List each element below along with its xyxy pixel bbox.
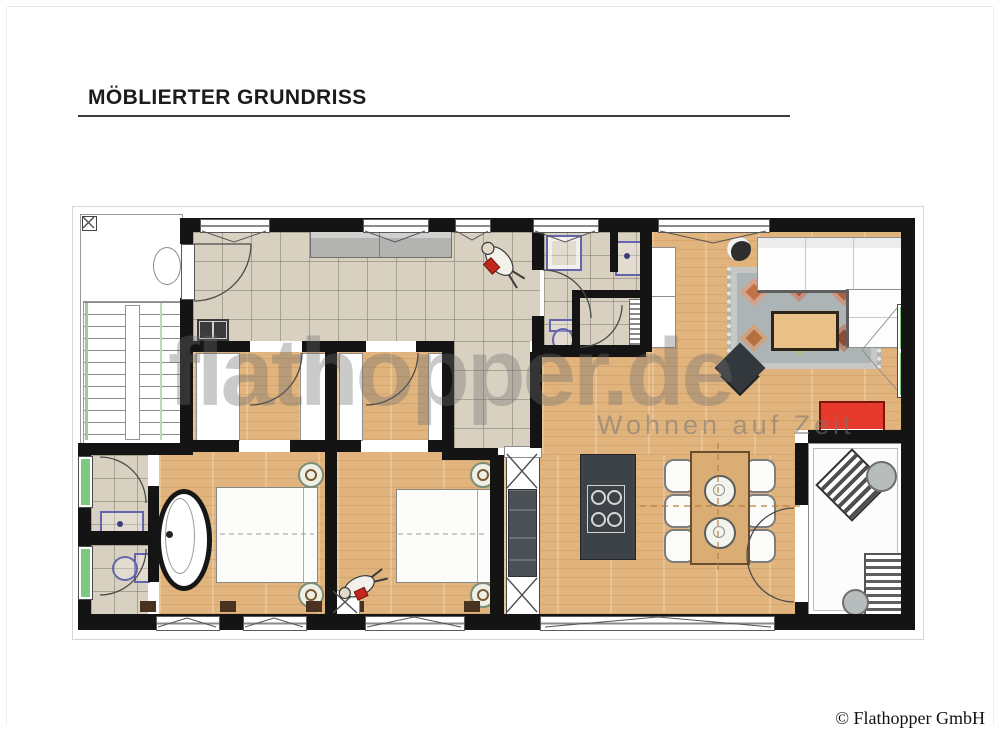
window-opening-mark bbox=[535, 231, 595, 242]
door-arc-storage bbox=[580, 305, 622, 347]
person-bedroom-icon bbox=[336, 566, 391, 606]
window-swing-lines bbox=[862, 308, 897, 390]
x-box-kitchen-top bbox=[507, 454, 537, 488]
window-opening-mark bbox=[158, 618, 216, 627]
person-hallway-icon bbox=[474, 237, 529, 294]
door-arc-entry bbox=[194, 244, 251, 301]
window-opening-mark bbox=[660, 231, 766, 243]
x-box-stairwell bbox=[83, 217, 94, 228]
door-arc-bathroom bbox=[543, 270, 591, 318]
door-arc-ensuite-wc bbox=[100, 549, 146, 595]
window-opening-mark bbox=[367, 617, 461, 627]
door-arc-bedroom2 bbox=[366, 353, 418, 405]
door-arc-balcony-upper bbox=[747, 508, 794, 555]
window-opening-mark bbox=[545, 617, 771, 627]
door-arc-balcony-lower bbox=[747, 555, 794, 602]
plan-annotations bbox=[0, 0, 1000, 750]
window-opening-mark bbox=[365, 231, 425, 242]
floorplan bbox=[0, 0, 1000, 750]
window-opening-mark bbox=[456, 231, 488, 240]
door-arc-ensuite-basin bbox=[100, 457, 146, 503]
door-arc-bedroom1 bbox=[250, 353, 302, 405]
window-opening-mark bbox=[202, 231, 266, 242]
x-box-kitchen-bottom bbox=[507, 578, 537, 612]
window-opening-mark bbox=[245, 618, 303, 627]
floorplan-page: { "header": { "title": "MÖBLIERTER GRUND… bbox=[0, 0, 1000, 750]
